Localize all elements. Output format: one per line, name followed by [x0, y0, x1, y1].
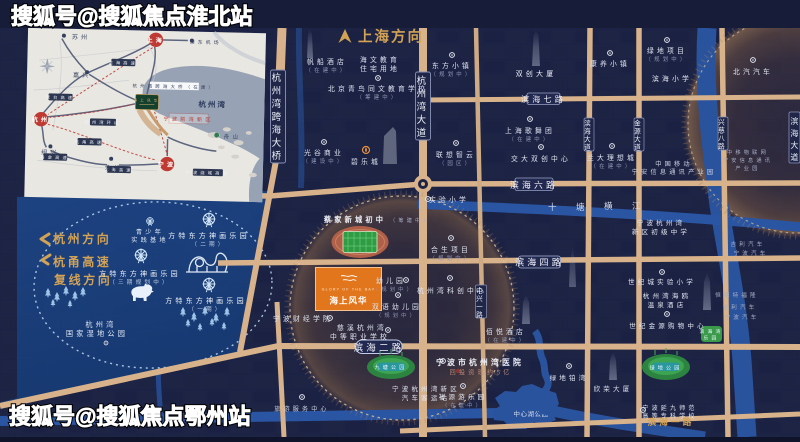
svg-text:中等职业学校: 中等职业学校 — [330, 332, 390, 341]
svg-text:世纪城实验小学: 世纪城实验小学 — [628, 277, 696, 286]
svg-text:宁波杭州湾: 宁波杭州湾 — [637, 218, 686, 227]
svg-text:（规划中）: （规划中） — [646, 55, 689, 63]
svg-text:北汽汽车: 北汽汽车 — [733, 67, 773, 76]
svg-text:（二期）: （二期） — [191, 241, 226, 248]
svg-text:兰大理想城: 兰大理想城 — [587, 153, 637, 162]
svg-text:合生项目: 合生项目 — [431, 245, 471, 254]
svg-text:慈溪杭州湾: 慈溪杭州湾 — [337, 323, 387, 332]
svg-text:乐园: 乐园 — [704, 335, 720, 342]
svg-text:佰悦酒店: 佰悦酒店 — [486, 327, 526, 336]
svg-text:产业园: 产业园 — [735, 164, 760, 172]
svg-text:GLORY OF THE BAY: GLORY OF THE BAY — [322, 288, 376, 292]
svg-text:绿地项目: 绿地项目 — [647, 46, 687, 55]
svg-text:方特东方神画乐园: 方特东方神画乐园 — [165, 296, 247, 305]
svg-text:双创大厦: 双创大厦 — [516, 69, 557, 78]
svg-text:滨海七路: 滨海七路 — [521, 94, 566, 104]
svg-text:金源大道: 金源大道 — [634, 119, 644, 152]
svg-text:滨海小学: 滨海小学 — [652, 74, 692, 83]
svg-text:宁波市杭州湾医院: 宁波市杭州湾医院 — [436, 357, 524, 367]
svg-text:杭甬高速: 杭甬高速 — [53, 254, 111, 269]
svg-text:兴慈八路: 兴慈八路 — [718, 118, 728, 151]
svg-text:吉利汽车: 吉利汽车 — [731, 240, 766, 248]
svg-text:住宅用地: 住宅用地 — [360, 64, 400, 73]
svg-text:上海歌舞团: 上海歌舞团 — [505, 126, 555, 135]
svg-text:联想智云: 联想智云 — [436, 150, 476, 159]
svg-text:（在建中）: （在建中） — [509, 135, 552, 143]
svg-text:康养小镇: 康养小镇 — [590, 59, 630, 68]
svg-text:青少年: 青少年 — [136, 228, 164, 236]
svg-text:（规划中）: （规划中） — [431, 70, 474, 78]
svg-text:杭州湾海鸥: 杭州湾海鸥 — [643, 291, 692, 300]
svg-text:（规划中）: （规划中） — [376, 311, 418, 319]
svg-text:海上风华: 海上风华 — [329, 296, 367, 306]
svg-text:杭州湾: 杭州湾 — [198, 99, 227, 110]
svg-text:（建设中）: （建设中） — [303, 157, 346, 165]
svg-text:世纪金源购物中心: 世纪金源购物中心 — [629, 321, 707, 330]
svg-text:实验小学: 实验小学 — [429, 195, 469, 204]
svg-text:滨海二路: 滨海二路 — [354, 342, 405, 354]
svg-text:江: 江 — [632, 201, 644, 211]
svg-text:双语幼儿园: 双语幼儿园 — [372, 302, 422, 311]
svg-text:绿地铂湾: 绿地铂湾 — [550, 373, 589, 382]
svg-text:北京青鸟同文教育学校: 北京青鸟同文教育学校 — [328, 84, 428, 93]
svg-text:（在建中）: （在建中） — [485, 336, 528, 344]
svg-text:新区初级中学: 新区初级中学 — [632, 227, 690, 236]
svg-text:宁波汽车: 宁波汽车 — [734, 249, 769, 257]
svg-text:蔡家新城初中: 蔡家新城初中 — [323, 215, 386, 224]
svg-text:横: 横 — [604, 201, 616, 211]
svg-text:塘: 塘 — [576, 202, 588, 212]
svg-text:（筹建中）: （筹建中） — [357, 93, 400, 101]
svg-text:搜狐号@搜狐焦点淮北站: 搜狐号@搜狐焦点淮北站 — [11, 4, 252, 29]
svg-text:（筹建中）: （筹建中） — [390, 216, 432, 224]
svg-text:十: 十 — [548, 202, 560, 212]
svg-text:（规划中）: （规划中） — [373, 285, 415, 293]
svg-text:杭州湾科创中心: 杭州湾科创中心 — [417, 286, 487, 295]
svg-text:幼儿园: 幼儿园 — [376, 276, 406, 285]
svg-text:滨海四路: 滨海四路 — [515, 257, 564, 268]
svg-text:（规划中）: （规划中） — [430, 254, 473, 262]
svg-text:宁波汽车: 宁波汽车 — [725, 313, 760, 321]
svg-text:欣荣大厦: 欣荣大厦 — [594, 384, 633, 393]
svg-text:杭州湾跨海大桥: 杭州湾跨海大桥 — [272, 72, 285, 162]
svg-text:东方小镇: 东方小镇 — [432, 61, 472, 70]
svg-text:回投资现约5亿: 回投资现约5亿 — [450, 369, 513, 377]
svg-text:碧乐城: 碧乐城 — [351, 157, 381, 166]
svg-text:海上风华: 海上风华 — [133, 97, 160, 103]
svg-text:宁安信息通讯: 宁安信息通讯 — [723, 156, 773, 164]
svg-text:滨海大道: 滨海大道 — [584, 119, 594, 152]
svg-text:滨海六路: 滨海六路 — [510, 179, 558, 190]
svg-text:宁波杭州湾新区: 宁波杭州湾新区 — [392, 384, 460, 393]
svg-text:（三期规划中）: （三期规划中） — [109, 278, 171, 286]
svg-text:交大双创中心: 交大双创中心 — [511, 154, 571, 163]
svg-text:恒德特福隆: 恒德特福隆 — [715, 291, 759, 299]
svg-text:海文教育: 海文教育 — [360, 55, 400, 64]
svg-text:方特东方神画乐园: 方特东方神画乐园 — [99, 269, 181, 278]
svg-text:光谷商业: 光谷商业 — [304, 148, 344, 157]
svg-text:温泉酒店: 温泉酒店 — [648, 300, 687, 309]
svg-text:（园区）: （园区） — [439, 160, 473, 167]
svg-text:（在建中）: （在建中） — [306, 66, 349, 74]
svg-text:中移物联网: 中移物联网 — [727, 148, 769, 156]
svg-text:中国移动: 中国移动 — [655, 160, 693, 168]
svg-text:杭州方向: 杭州方向 — [53, 231, 111, 246]
svg-text:帆船酒店: 帆船酒店 — [307, 57, 347, 66]
svg-text:杭州湾大道: 杭州湾大道 — [417, 75, 430, 139]
svg-text:高等专科学校: 高等专科学校 — [642, 412, 697, 420]
svg-text:汽车客运站: 汽车客运站 — [402, 393, 451, 402]
svg-text:吉利汽车: 吉利汽车 — [723, 303, 758, 311]
svg-text:宁波延九师范: 宁波延九师范 — [642, 404, 697, 412]
svg-text:（在建中）: （在建中） — [442, 401, 484, 409]
svg-text:旅游服务中心: 旅游服务中心 — [274, 405, 329, 413]
svg-text:宁波财经学院: 宁波财经学院 — [273, 314, 333, 323]
svg-text:国家湿地公园: 国家湿地公园 — [66, 329, 128, 338]
svg-text:（在建中）: （在建中） — [591, 162, 634, 170]
svg-text:九塘公园: 九塘公园 — [375, 364, 408, 371]
svg-text:实践基地: 实践基地 — [131, 236, 169, 244]
svg-text:绿地公园: 绿地公园 — [650, 365, 683, 372]
svg-text:上海方向: 上海方向 — [358, 28, 424, 46]
svg-text:宁安信息通讯产业园: 宁安信息通讯产业园 — [632, 168, 717, 176]
svg-text:杭州湾: 杭州湾 — [85, 320, 116, 329]
svg-text:搜狐号@搜狐焦点鄂州站: 搜狐号@搜狐焦点鄂州站 — [9, 404, 250, 429]
svg-text:方特东方神画乐园: 方特东方神画乐园 — [168, 231, 250, 240]
